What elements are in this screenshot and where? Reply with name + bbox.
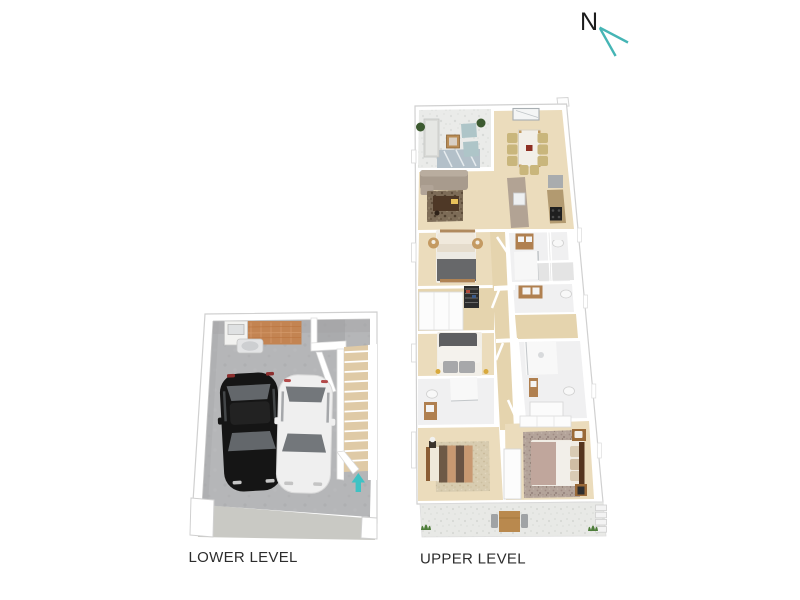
svg-text:UPPER LEVEL: UPPER LEVEL: [420, 551, 526, 568]
svg-text:N: N: [580, 8, 598, 36]
svg-text:LOWER LEVEL: LOWER LEVEL: [189, 549, 298, 566]
